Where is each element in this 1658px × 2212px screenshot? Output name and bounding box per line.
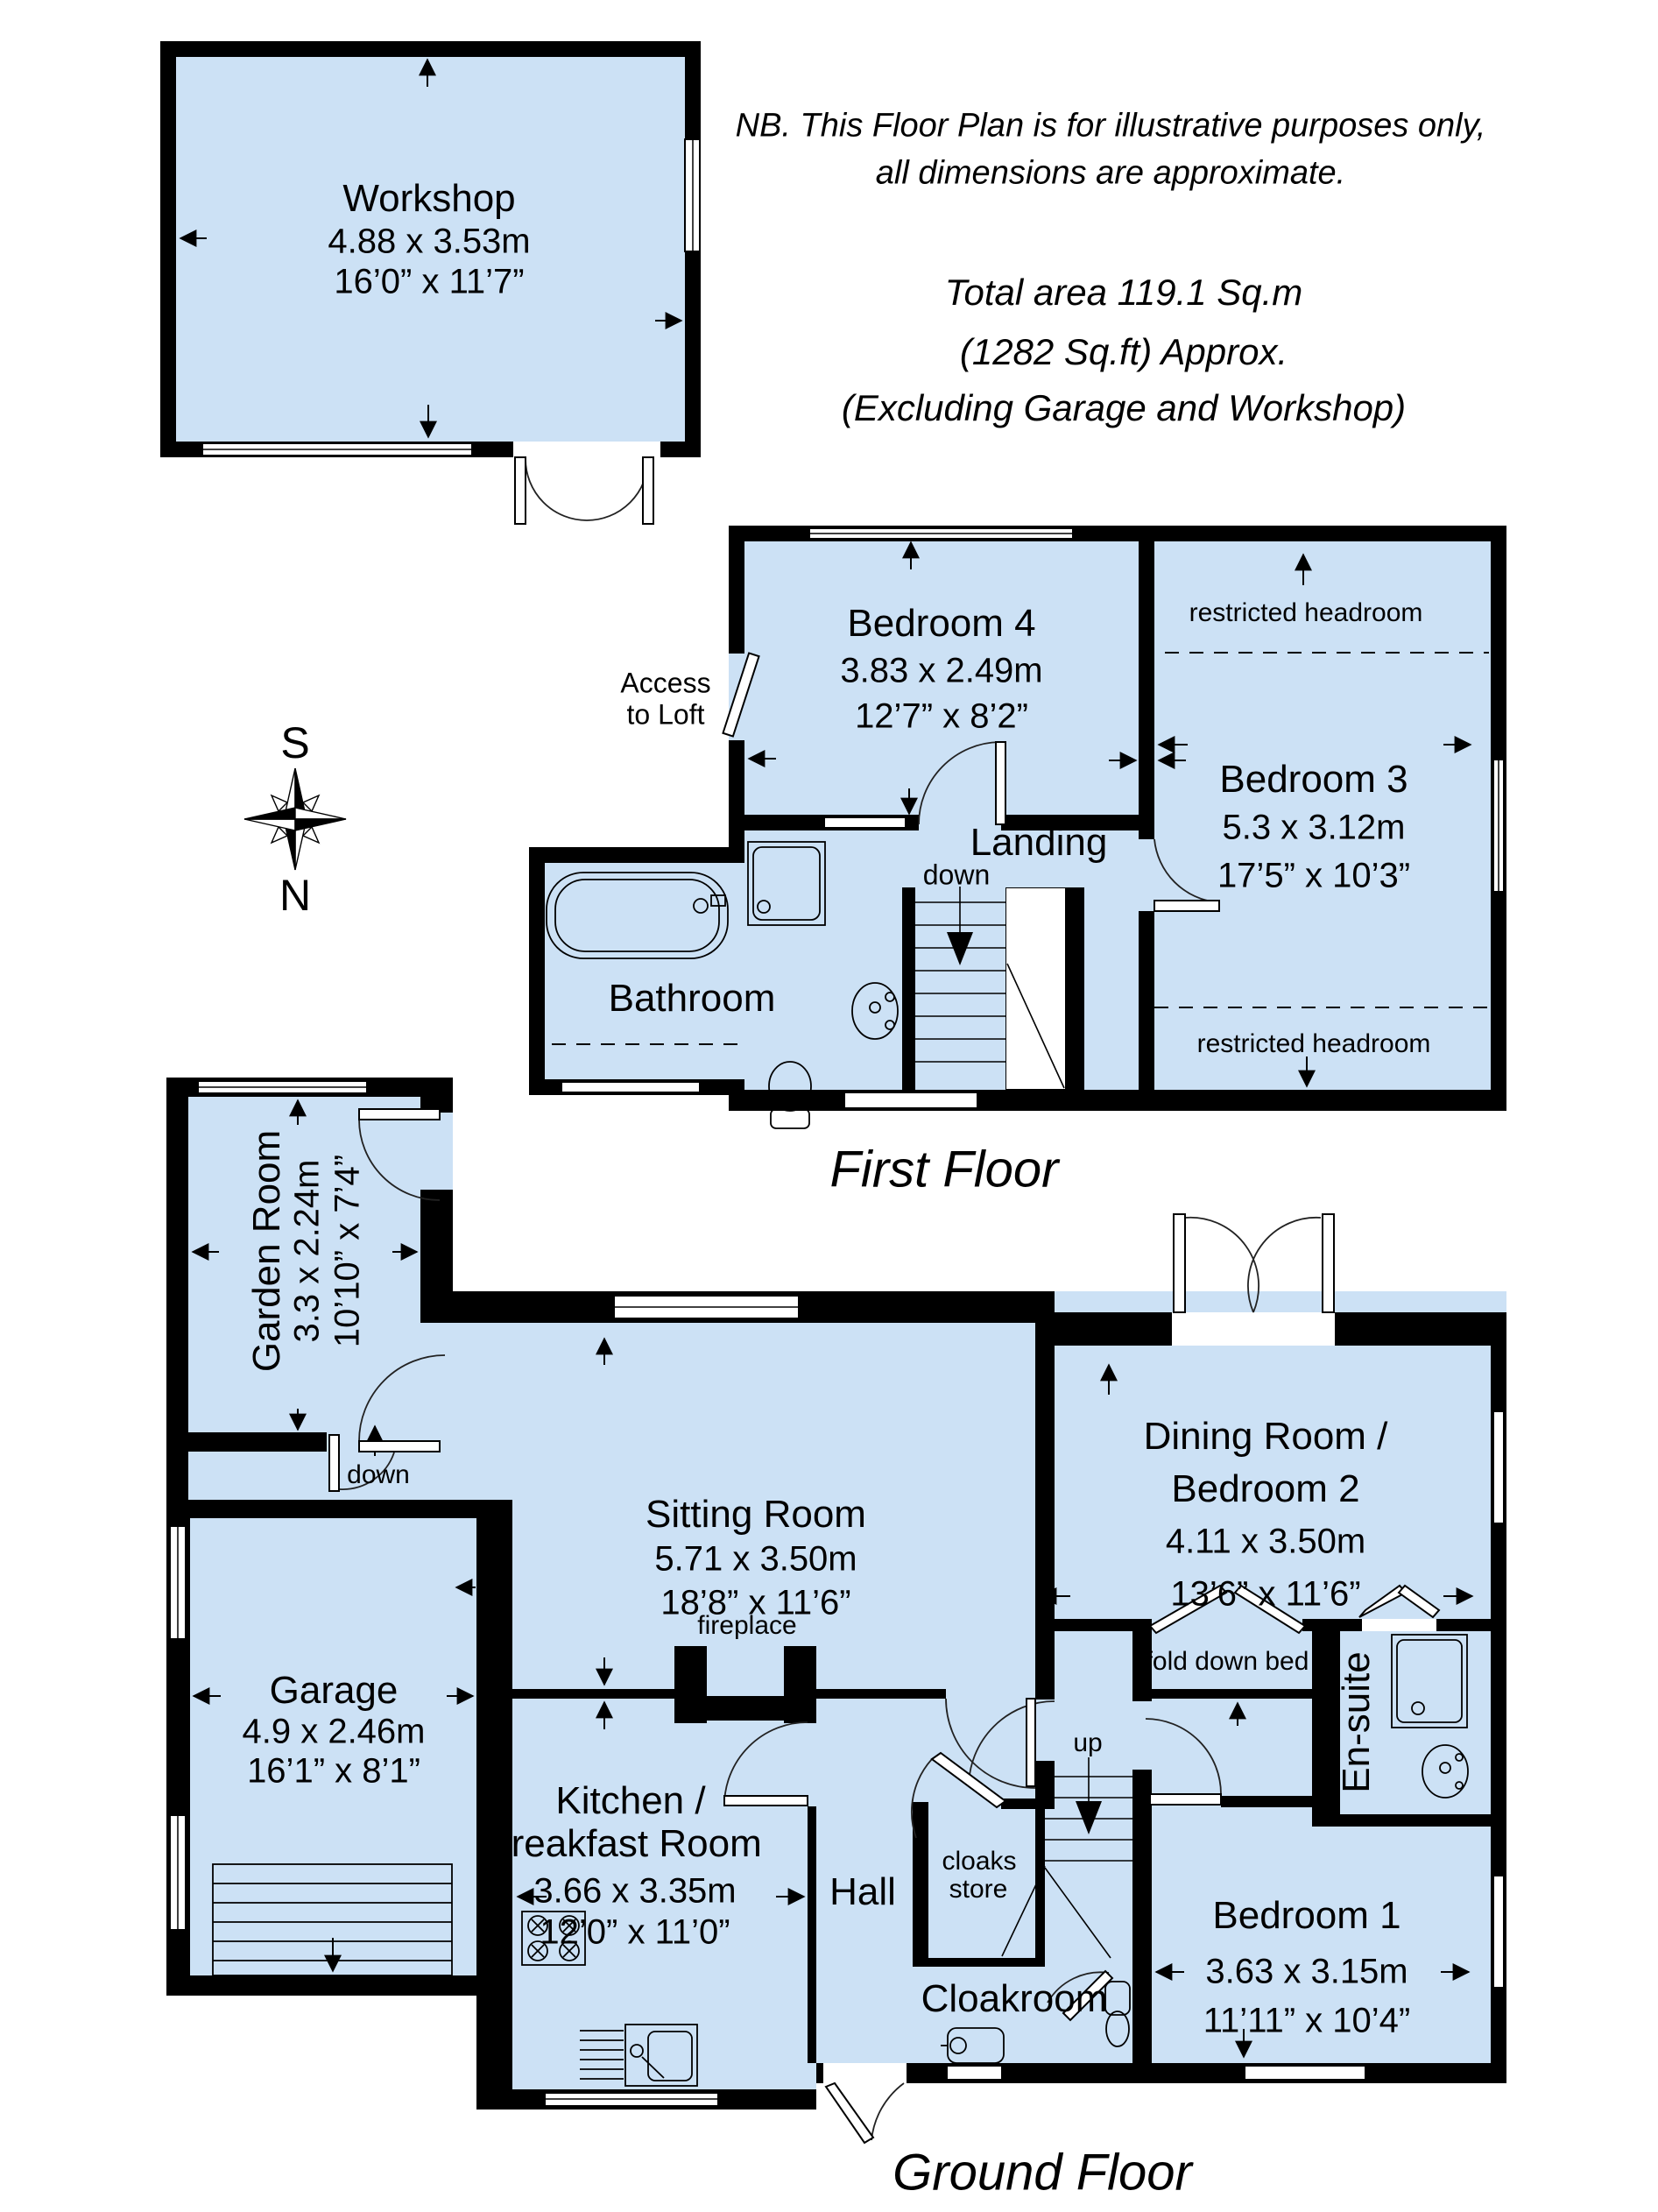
workshop-label: Workshop bbox=[342, 177, 515, 221]
ensuite-label: En-suite bbox=[1335, 1651, 1379, 1792]
window bbox=[169, 1525, 187, 1640]
wall bbox=[1132, 1770, 1152, 2063]
wall bbox=[420, 1078, 453, 1113]
total-area-line3: (Excluding Garage and Workshop) bbox=[842, 387, 1406, 429]
wall bbox=[529, 847, 545, 1095]
bedroom4-metric: 3.83 x 2.49m bbox=[840, 652, 1042, 691]
workshop-metric: 4.88 x 3.53m bbox=[328, 223, 530, 262]
note-line2: all dimensions are approximate. bbox=[876, 155, 1346, 193]
stair-void bbox=[1005, 887, 1066, 1090]
dining-room-metric: 4.11 x 3.50m bbox=[1166, 1523, 1365, 1562]
bedroom1-metric: 3.63 x 3.15m bbox=[1205, 1953, 1408, 1992]
wall bbox=[729, 740, 744, 863]
note-line1: NB. This Floor Plan is for illustrative … bbox=[736, 108, 1486, 145]
kitchen-metric: 3.66 x 3.35m bbox=[533, 1872, 736, 1912]
fold-down-bed-label: fold down bed bbox=[1146, 1647, 1309, 1677]
garage-imperial: 16’1” x 8’1” bbox=[247, 1752, 420, 1792]
fireplace-base bbox=[674, 1696, 816, 1721]
french-door-opening bbox=[1172, 1312, 1335, 1346]
ground-floor-title: Ground Floor bbox=[892, 2144, 1192, 2202]
fireplace-label: fireplace bbox=[697, 1611, 796, 1641]
window bbox=[808, 527, 1074, 540]
wall bbox=[1302, 1619, 1340, 1631]
garage-metric: 4.9 x 2.46m bbox=[242, 1713, 425, 1752]
compass-rose-icon bbox=[244, 768, 346, 870]
wall bbox=[1147, 1689, 1312, 1699]
wall bbox=[913, 1802, 928, 1967]
window bbox=[197, 1080, 368, 1094]
bedroom1-imperial: 11’11” x 10’4” bbox=[1203, 2002, 1410, 2041]
compass-north-label: N bbox=[279, 870, 311, 921]
floor-plan-canvas: NB. This Floor Plan is for illustrative … bbox=[0, 0, 1658, 2212]
wall bbox=[1001, 1799, 1035, 1809]
workshop-imperial: 16’0” x 11’7” bbox=[334, 263, 524, 302]
garden-room-imperial: 10’10” x 7’4” bbox=[328, 1155, 368, 1347]
wall bbox=[1139, 526, 1154, 839]
wall bbox=[913, 1958, 1045, 1967]
garden-room-metric: 3.3 x 2.24m bbox=[288, 1159, 328, 1342]
sitting-room-label: Sitting Room bbox=[646, 1493, 866, 1537]
garden-room-label: Garden Room bbox=[245, 1130, 289, 1372]
restricted-headroom-bottom: restricted headroom bbox=[1197, 1029, 1431, 1059]
window bbox=[1492, 1875, 1505, 1989]
wall bbox=[166, 1975, 512, 1996]
window bbox=[684, 138, 701, 252]
wall bbox=[1221, 1796, 1340, 1807]
first-floor-title: First Floor bbox=[830, 1141, 1059, 1199]
dining-room-imperial: 13’6” x 11’6” bbox=[1170, 1575, 1360, 1615]
ensuite-door-opening bbox=[1362, 1619, 1436, 1631]
kitchen-label1: Kitchen / bbox=[555, 1779, 705, 1823]
window bbox=[823, 816, 907, 829]
wall bbox=[816, 2063, 1506, 2083]
wall bbox=[1066, 887, 1084, 1090]
window bbox=[1492, 759, 1505, 893]
bedroom3-metric: 5.3 x 3.12m bbox=[1222, 809, 1405, 848]
window bbox=[544, 2092, 719, 2107]
window bbox=[1244, 2065, 1366, 2081]
kitchen-label2: Breakfast Room bbox=[485, 1822, 761, 1866]
wall bbox=[1035, 1761, 1055, 1809]
cloakroom-label: Cloakroom bbox=[921, 1977, 1108, 2021]
wall bbox=[529, 847, 744, 863]
wall bbox=[1035, 1809, 1045, 1958]
window bbox=[946, 2065, 1003, 2081]
access-loft-line2: to Loft bbox=[627, 699, 705, 731]
wall bbox=[166, 1500, 512, 1518]
passage-fill bbox=[453, 1291, 512, 1519]
wall bbox=[476, 1500, 512, 2110]
dining-room-label1: Dining Room / bbox=[1144, 1415, 1388, 1459]
bathroom-label: Bathroom bbox=[609, 977, 776, 1021]
window bbox=[561, 1081, 701, 1093]
down-label-lobby: down bbox=[347, 1460, 410, 1490]
window bbox=[843, 1092, 978, 1109]
wall bbox=[160, 41, 701, 57]
bedroom4-imperial: 12’7” x 8’2” bbox=[855, 697, 1028, 737]
hall-label: Hall bbox=[829, 1870, 896, 1914]
total-area-line2: (1282 Sq.ft) Approx. bbox=[960, 331, 1288, 373]
window bbox=[613, 1295, 800, 1319]
garage-label: Garage bbox=[270, 1669, 399, 1713]
wall bbox=[1035, 1291, 1055, 1700]
kitchen-imperial: 12’0” x 11’0” bbox=[540, 1913, 730, 1953]
sitting-room-metric: 5.71 x 3.50m bbox=[654, 1540, 857, 1579]
bathroom-wing-fill bbox=[529, 847, 744, 1095]
access-loft-line1: Access bbox=[620, 668, 710, 700]
window bbox=[201, 442, 473, 456]
compass-south-label: S bbox=[280, 717, 309, 768]
wall bbox=[808, 1806, 816, 2063]
wall bbox=[1055, 1619, 1147, 1631]
window bbox=[1492, 1410, 1505, 1524]
wall bbox=[166, 1432, 327, 1452]
wall bbox=[1139, 911, 1154, 1111]
front-door-opening bbox=[823, 2063, 907, 2083]
wall bbox=[1340, 1814, 1491, 1827]
door-opening bbox=[513, 442, 660, 457]
up-label: up bbox=[1073, 1728, 1102, 1758]
restricted-headroom-top: restricted headroom bbox=[1189, 598, 1423, 628]
bedroom3-imperial: 17’5” x 10’3” bbox=[1217, 857, 1410, 896]
wall bbox=[160, 41, 176, 457]
total-area-line1: Total area 119.1 Sq.m bbox=[945, 272, 1303, 314]
wall bbox=[166, 1078, 188, 1518]
dining-room-label2: Bedroom 2 bbox=[1171, 1467, 1359, 1511]
wall bbox=[476, 1689, 674, 1699]
cloaks-store-line1: cloaks bbox=[942, 1847, 1016, 1876]
down-label-first-floor: down bbox=[923, 859, 991, 892]
wall bbox=[729, 526, 744, 654]
bedroom4-label: Bedroom 4 bbox=[847, 602, 1035, 646]
bedroom3-label: Bedroom 3 bbox=[1219, 758, 1408, 802]
wall bbox=[816, 1689, 946, 1699]
window bbox=[169, 1814, 187, 1931]
landing-label: Landing bbox=[970, 821, 1108, 865]
bedroom1-label: Bedroom 1 bbox=[1212, 1894, 1400, 1938]
cloaks-store-line2: store bbox=[949, 1875, 1008, 1905]
wall bbox=[902, 887, 915, 1090]
